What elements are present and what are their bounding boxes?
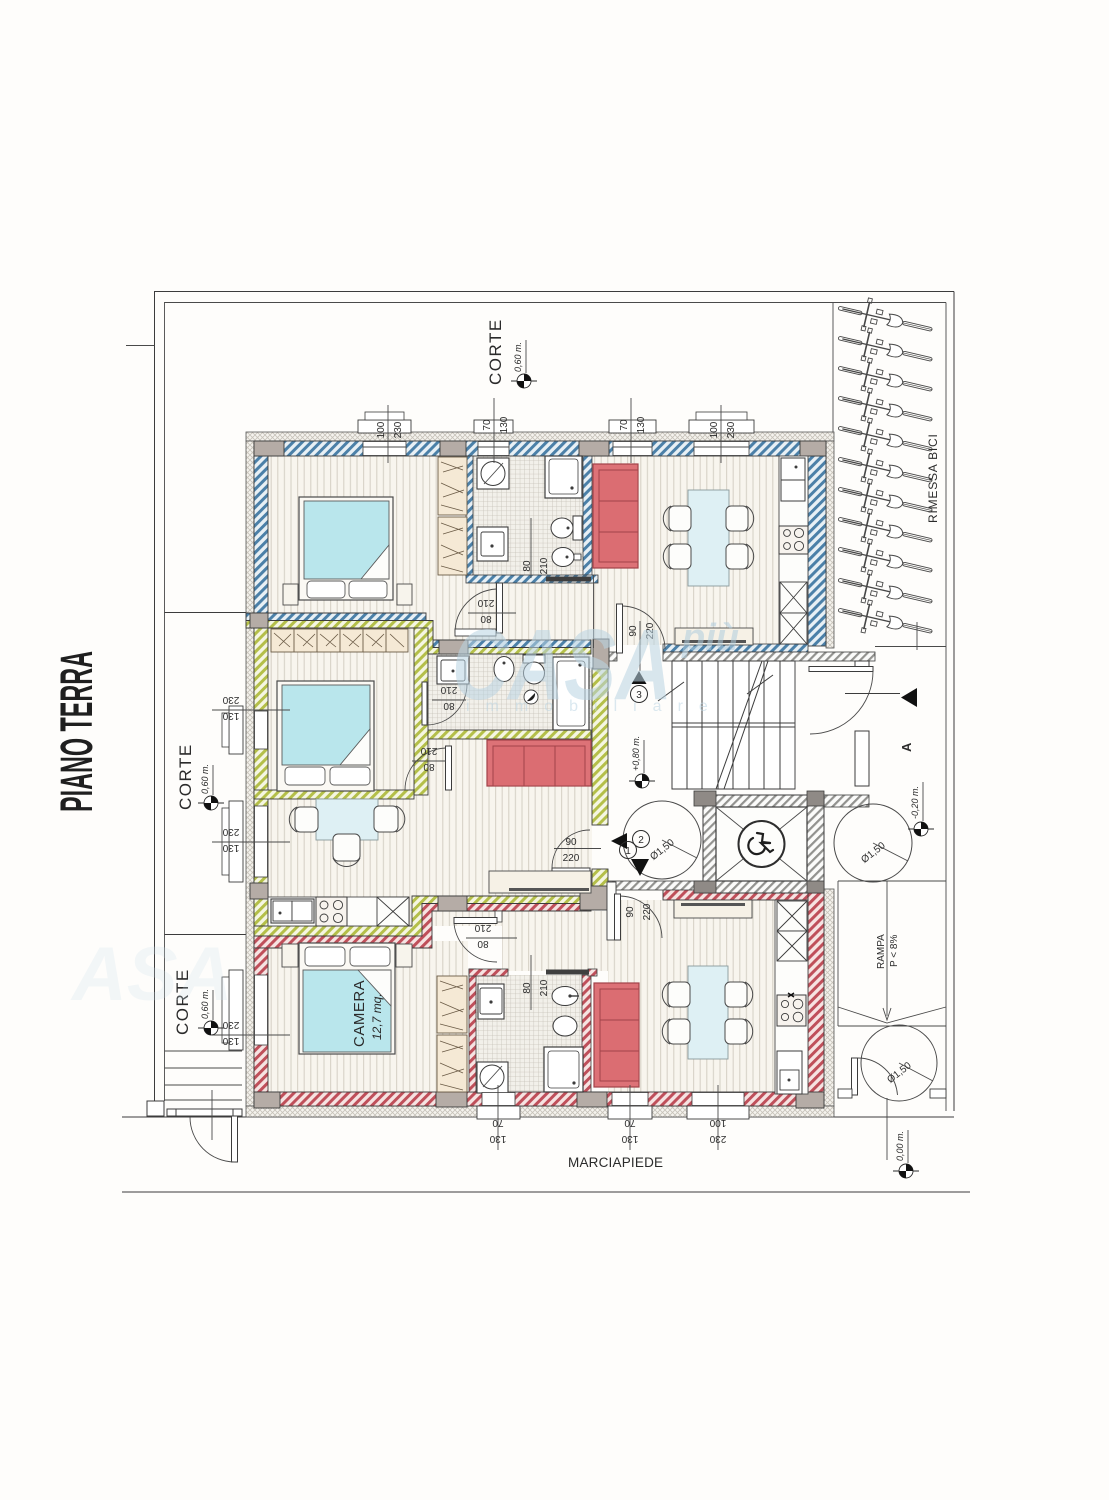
svg-text:P < 8%: P < 8% [889, 935, 900, 967]
svg-text:100: 100 [709, 421, 720, 438]
svg-text:0,60 m.: 0,60 m. [200, 764, 210, 794]
svg-text:+0,80 m.: +0,80 m. [631, 736, 641, 771]
svg-text:12,7 mq.: 12,7 mq. [370, 993, 384, 1040]
svg-text:CORTE: CORTE [486, 318, 505, 385]
svg-text:più: più [681, 617, 739, 659]
svg-text:210: 210 [477, 597, 494, 608]
svg-text:130: 130 [222, 842, 239, 853]
svg-text:CAMERA: CAMERA [351, 980, 368, 1047]
svg-text:100: 100 [709, 1117, 726, 1128]
svg-text:220: 220 [563, 853, 580, 864]
svg-text:230: 230 [222, 1019, 239, 1030]
svg-text:A: A [899, 742, 914, 752]
svg-text:130: 130 [489, 1133, 506, 1144]
svg-text:230: 230 [726, 421, 737, 438]
svg-text:0,60 m.: 0,60 m. [513, 342, 523, 372]
svg-text:1: 1 [625, 846, 631, 857]
svg-text:immobiliare: immobiliare [466, 698, 724, 715]
svg-text:70: 70 [624, 1117, 636, 1128]
svg-text:90: 90 [565, 837, 577, 848]
svg-text:80: 80 [477, 938, 489, 949]
svg-text:-0,20 m.: -0,20 m. [910, 786, 920, 819]
svg-text:230: 230 [393, 421, 404, 438]
svg-text:80: 80 [423, 761, 435, 772]
svg-text:210: 210 [420, 745, 437, 756]
svg-text:RAMPA: RAMPA [876, 934, 887, 969]
svg-text:0,00 m.: 0,00 m. [895, 1131, 905, 1161]
svg-text:130: 130 [621, 1133, 638, 1144]
svg-text:220: 220 [642, 903, 653, 920]
svg-text:RIMESSA BICI: RIMESSA BICI [926, 433, 940, 523]
svg-text:PIANO TERRA: PIANO TERRA [51, 651, 102, 812]
svg-text:130: 130 [222, 710, 239, 721]
svg-text:70: 70 [619, 419, 630, 431]
svg-text:ASA: ASA [70, 932, 232, 1017]
svg-text:210: 210 [474, 922, 491, 933]
svg-text:MARCIAPIEDE: MARCIAPIEDE [568, 1155, 663, 1170]
svg-text:230: 230 [222, 694, 239, 705]
svg-text:90: 90 [625, 906, 636, 918]
svg-text:130: 130 [222, 1035, 239, 1046]
svg-text:70: 70 [492, 1117, 504, 1128]
svg-text:2: 2 [638, 835, 644, 846]
svg-text:130: 130 [636, 416, 647, 433]
svg-text:210: 210 [539, 557, 550, 574]
svg-text:210: 210 [539, 979, 550, 996]
svg-text:CORTE: CORTE [176, 743, 195, 810]
svg-text:230: 230 [709, 1133, 726, 1144]
svg-text:70: 70 [482, 419, 493, 431]
svg-text:100: 100 [376, 421, 387, 438]
svg-text:230: 230 [222, 826, 239, 837]
svg-text:130: 130 [499, 416, 510, 433]
